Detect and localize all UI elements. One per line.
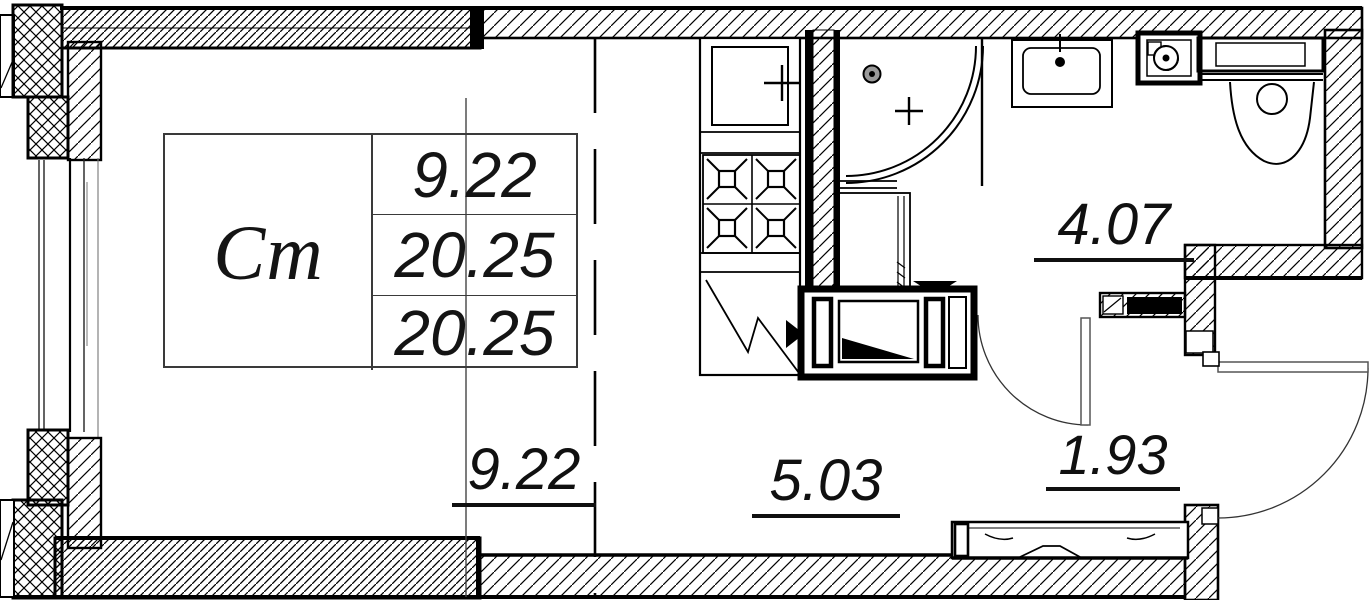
- drain-cross-icon: [895, 97, 923, 125]
- living-area-label: 9.22: [452, 441, 596, 507]
- floor-plan: Ст 9.22 20.25 20.25 9.22 5.03 4.07 1.93: [0, 0, 1371, 600]
- unit-area-value: 20.25: [373, 295, 576, 370]
- kitchen-unit: [700, 38, 804, 375]
- entrance-door: [1203, 352, 1368, 518]
- unit-area-value: 20.25: [373, 214, 576, 295]
- entry-threshold-icon: [952, 522, 1188, 558]
- shower-room: [838, 38, 983, 290]
- door-swing-arc-icon: [978, 315, 1088, 425]
- stove-burners-icon: [703, 155, 800, 253]
- bathroom-door: [978, 315, 1090, 425]
- corner-shower-icon: [840, 38, 983, 188]
- window-icon: [39, 158, 98, 438]
- bath-hall-wall-stub: [1100, 293, 1185, 317]
- vent-fan-icon: [1138, 33, 1200, 83]
- bathroom-area-label: 4.07: [1034, 196, 1194, 262]
- unit-type-label: Ст: [165, 135, 373, 370]
- door-swing-arc-icon: [1218, 368, 1368, 518]
- bathroom-fixtures: [1012, 33, 1323, 164]
- left-wall-and-window: [0, 5, 101, 598]
- hallway-area-label: 1.93: [1046, 427, 1180, 491]
- shower-door: [838, 193, 910, 290]
- unit-info-table: Ст 9.22 20.25 20.25: [163, 133, 578, 368]
- bath-sink-icon: [1012, 34, 1112, 107]
- toilet-icon: [1198, 38, 1323, 164]
- kitchen-bath-wall: [805, 30, 840, 292]
- appliance-block-icon: [801, 281, 974, 377]
- kitchen-area-label: 5.03: [752, 452, 900, 518]
- shaft-block: [1127, 297, 1182, 314]
- unit-area-value: 9.22: [373, 135, 576, 214]
- shower-head-icon: [864, 66, 881, 83]
